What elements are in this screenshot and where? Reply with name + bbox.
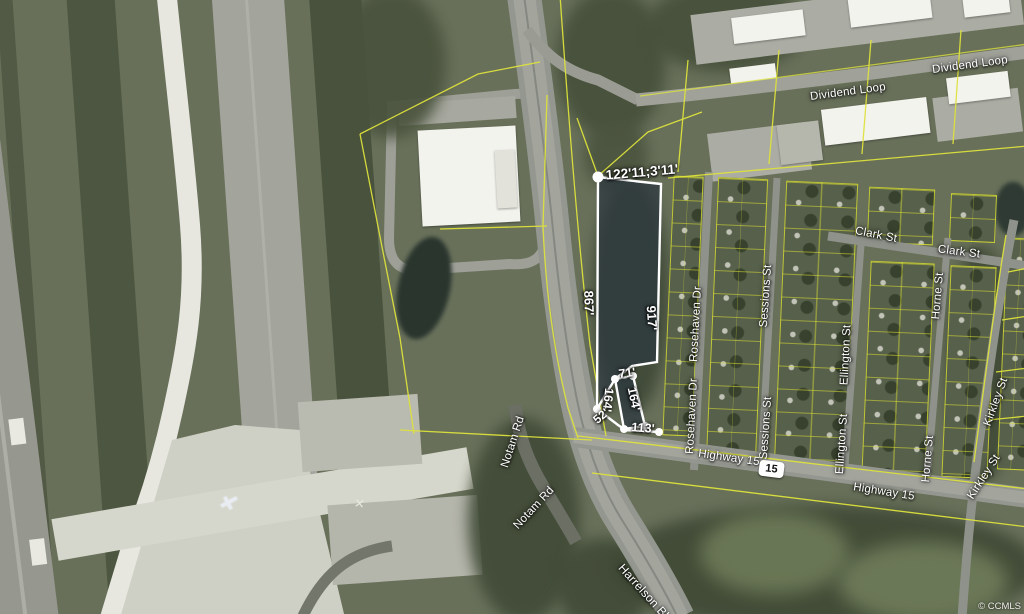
parcel-corner-dot <box>611 375 619 383</box>
parcel-corner-dot <box>620 425 628 433</box>
aerial-map-viewport[interactable]: ✕ Dividend Loop Dividend Loop Clark St C… <box>0 0 1024 614</box>
parcel-dim-113: 113' <box>631 420 655 436</box>
parcel-corner-dot <box>655 428 663 436</box>
parcel-corner-dot <box>593 172 604 183</box>
highway-15-shield: 15 <box>758 460 785 479</box>
map-attribution: © CCMLS <box>978 601 1021 612</box>
parcel-dim-right: 917' <box>644 305 661 331</box>
parcel-dim-71: 71' <box>618 365 637 381</box>
runway-closed-x-marker: ✕ <box>353 495 366 512</box>
parcel-dim-left: 867' <box>581 290 597 315</box>
